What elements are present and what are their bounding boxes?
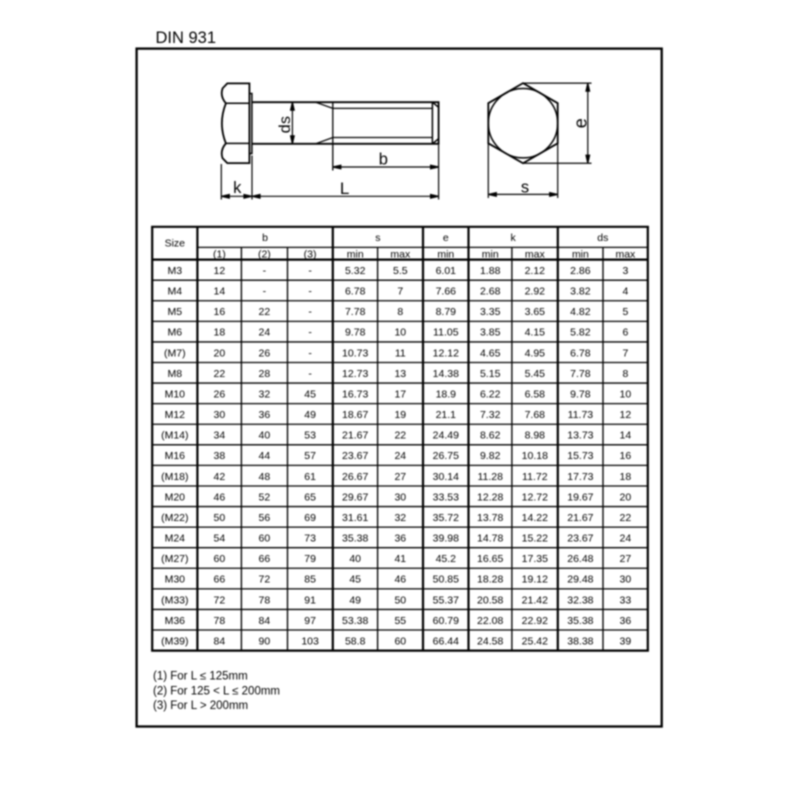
- svg-text:66: 66: [259, 553, 271, 565]
- svg-text:27: 27: [394, 471, 406, 483]
- svg-text:M10: M10: [165, 389, 186, 401]
- svg-text:4: 4: [622, 286, 628, 298]
- svg-text:78: 78: [214, 615, 226, 627]
- svg-text:6.22: 6.22: [480, 389, 501, 401]
- svg-text:24.58: 24.58: [477, 635, 503, 647]
- svg-text:32: 32: [394, 512, 406, 524]
- svg-text:8: 8: [397, 306, 403, 318]
- svg-text:k: k: [233, 179, 242, 197]
- svg-text:41: 41: [394, 553, 406, 565]
- svg-text:4.95: 4.95: [525, 347, 546, 359]
- svg-text:8.98: 8.98: [525, 430, 546, 442]
- svg-text:3.82: 3.82: [570, 286, 591, 298]
- svg-text:7: 7: [397, 286, 403, 298]
- svg-text:38.38: 38.38: [567, 635, 593, 647]
- svg-text:16.65: 16.65: [477, 553, 503, 565]
- svg-text:72: 72: [214, 594, 226, 606]
- svg-text:-: -: [263, 265, 267, 277]
- svg-text:9.78: 9.78: [570, 389, 591, 401]
- svg-text:66.44: 66.44: [433, 635, 459, 647]
- svg-text:17.35: 17.35: [522, 553, 548, 565]
- svg-text:14.38: 14.38: [433, 368, 459, 380]
- svg-text:49: 49: [349, 594, 361, 606]
- svg-text:(3) For L > 200mm: (3) For L > 200mm: [153, 700, 248, 712]
- svg-text:10: 10: [620, 389, 632, 401]
- svg-text:M3: M3: [168, 265, 183, 277]
- svg-text:90: 90: [259, 635, 271, 647]
- svg-text:6: 6: [622, 327, 628, 339]
- svg-text:30: 30: [394, 491, 406, 503]
- svg-text:5: 5: [622, 306, 628, 318]
- svg-text:10: 10: [394, 327, 406, 339]
- svg-text:58.8: 58.8: [345, 635, 366, 647]
- svg-text:15.73: 15.73: [567, 450, 593, 462]
- svg-text:66: 66: [214, 574, 226, 586]
- svg-text:18.9: 18.9: [436, 389, 457, 401]
- svg-text:e: e: [443, 232, 449, 244]
- svg-text:4.15: 4.15: [525, 327, 546, 339]
- svg-text:55: 55: [394, 615, 406, 627]
- svg-text:91: 91: [304, 594, 316, 606]
- svg-text:24: 24: [620, 533, 632, 545]
- svg-text:2.68: 2.68: [480, 286, 501, 298]
- svg-text:36: 36: [259, 409, 271, 421]
- svg-text:22.92: 22.92: [522, 615, 548, 627]
- svg-text:103: 103: [301, 635, 319, 647]
- svg-text:max: max: [525, 248, 546, 260]
- svg-text:14: 14: [214, 286, 226, 298]
- svg-text:-: -: [308, 306, 312, 318]
- svg-text:42: 42: [214, 471, 226, 483]
- svg-text:-: -: [263, 286, 267, 298]
- svg-text:49: 49: [304, 409, 316, 421]
- svg-text:24: 24: [394, 450, 406, 462]
- svg-text:31.61: 31.61: [342, 512, 368, 524]
- svg-text:7.68: 7.68: [525, 409, 546, 421]
- svg-text:23.67: 23.67: [567, 533, 593, 545]
- svg-text:8.62: 8.62: [480, 430, 501, 442]
- svg-text:21.42: 21.42: [522, 594, 548, 606]
- svg-text:14.78: 14.78: [477, 533, 503, 545]
- svg-text:53: 53: [304, 430, 316, 442]
- svg-text:97: 97: [304, 615, 316, 627]
- svg-text:7.78: 7.78: [345, 306, 366, 318]
- svg-text:s: s: [375, 232, 380, 244]
- svg-text:26.48: 26.48: [567, 553, 593, 565]
- svg-text:8.79: 8.79: [436, 306, 457, 318]
- svg-text:39: 39: [620, 635, 632, 647]
- svg-text:M4: M4: [168, 286, 183, 298]
- svg-text:3: 3: [622, 265, 628, 277]
- svg-text:10.18: 10.18: [522, 450, 548, 462]
- svg-text:12.28: 12.28: [477, 491, 503, 503]
- svg-text:19.67: 19.67: [567, 491, 593, 503]
- svg-text:(M39): (M39): [161, 635, 188, 647]
- svg-text:46: 46: [394, 574, 406, 586]
- svg-text:b: b: [262, 232, 268, 244]
- svg-text:45: 45: [304, 389, 316, 401]
- svg-text:1.88: 1.88: [480, 265, 501, 277]
- svg-text:17: 17: [394, 389, 406, 401]
- svg-text:ds: ds: [597, 232, 608, 244]
- svg-text:19: 19: [394, 409, 406, 421]
- svg-text:28: 28: [259, 368, 271, 380]
- svg-text:(M33): (M33): [161, 594, 188, 606]
- svg-text:11.28: 11.28: [477, 471, 503, 483]
- svg-text:b: b: [379, 151, 388, 169]
- svg-text:12.72: 12.72: [522, 491, 548, 503]
- svg-text:s: s: [521, 178, 529, 196]
- svg-text:9.78: 9.78: [345, 327, 366, 339]
- svg-text:79: 79: [304, 553, 316, 565]
- svg-text:M30: M30: [165, 574, 186, 586]
- svg-text:24: 24: [259, 327, 271, 339]
- svg-text:60.79: 60.79: [433, 615, 459, 627]
- svg-text:45: 45: [349, 574, 361, 586]
- svg-text:40: 40: [259, 430, 271, 442]
- svg-text:22: 22: [214, 368, 226, 380]
- svg-text:29.67: 29.67: [342, 491, 368, 503]
- svg-text:14.22: 14.22: [522, 512, 548, 524]
- svg-text:26.67: 26.67: [342, 471, 368, 483]
- svg-text:17.73: 17.73: [567, 471, 593, 483]
- svg-text:20.58: 20.58: [477, 594, 503, 606]
- svg-text:7.66: 7.66: [436, 286, 457, 298]
- svg-text:22.08: 22.08: [477, 615, 503, 627]
- svg-text:21.67: 21.67: [342, 430, 368, 442]
- svg-text:48: 48: [259, 471, 271, 483]
- svg-text:M24: M24: [165, 533, 186, 545]
- svg-text:53.38: 53.38: [342, 615, 368, 627]
- svg-text:60: 60: [259, 533, 271, 545]
- svg-text:25.42: 25.42: [522, 635, 548, 647]
- svg-text:6.78: 6.78: [345, 286, 366, 298]
- svg-text:5.15: 5.15: [480, 368, 501, 380]
- svg-text:26: 26: [259, 347, 271, 359]
- svg-text:min: min: [437, 248, 454, 260]
- svg-text:min: min: [347, 248, 364, 260]
- svg-text:4.65: 4.65: [480, 347, 501, 359]
- svg-text:-: -: [308, 265, 312, 277]
- svg-text:18: 18: [620, 471, 632, 483]
- svg-text:M20: M20: [165, 491, 186, 503]
- svg-text:61: 61: [304, 471, 316, 483]
- svg-text:18: 18: [214, 327, 226, 339]
- svg-text:36: 36: [620, 615, 632, 627]
- svg-text:2.12: 2.12: [525, 265, 546, 277]
- svg-text:-: -: [308, 368, 312, 380]
- svg-text:16: 16: [620, 450, 632, 462]
- svg-text:69: 69: [304, 512, 316, 524]
- svg-text:5.32: 5.32: [345, 265, 366, 277]
- svg-text:min: min: [482, 248, 499, 260]
- svg-text:7.78: 7.78: [570, 368, 591, 380]
- svg-text:12: 12: [214, 265, 226, 277]
- svg-text:56: 56: [259, 512, 271, 524]
- svg-text:33.53: 33.53: [433, 491, 459, 503]
- svg-text:M6: M6: [168, 327, 183, 339]
- svg-text:20: 20: [214, 347, 226, 359]
- svg-text:M12: M12: [165, 409, 186, 421]
- svg-text:(1): (1): [213, 248, 226, 260]
- svg-text:14: 14: [620, 430, 632, 442]
- svg-text:13: 13: [394, 368, 406, 380]
- svg-text:73: 73: [304, 533, 316, 545]
- svg-text:8: 8: [622, 368, 628, 380]
- svg-text:M16: M16: [165, 450, 186, 462]
- svg-text:32: 32: [259, 389, 271, 401]
- svg-text:9.82: 9.82: [480, 450, 501, 462]
- svg-text:57: 57: [304, 450, 316, 462]
- svg-text:20: 20: [620, 491, 632, 503]
- svg-text:85: 85: [304, 574, 316, 586]
- svg-text:10.73: 10.73: [342, 347, 368, 359]
- svg-text:(M22): (M22): [161, 512, 188, 524]
- svg-text:29.48: 29.48: [567, 574, 593, 586]
- svg-text:max: max: [390, 248, 411, 260]
- svg-text:3.85: 3.85: [480, 327, 501, 339]
- svg-text:32.38: 32.38: [567, 594, 593, 606]
- svg-text:7.32: 7.32: [480, 409, 501, 421]
- svg-text:2.86: 2.86: [570, 265, 591, 277]
- svg-text:39.98: 39.98: [433, 533, 459, 545]
- svg-text:84: 84: [214, 635, 226, 647]
- svg-text:M36: M36: [165, 615, 186, 627]
- svg-text:72: 72: [259, 574, 271, 586]
- svg-text:50.85: 50.85: [433, 574, 459, 586]
- svg-text:5.5: 5.5: [393, 265, 408, 277]
- svg-text:22: 22: [620, 512, 632, 524]
- svg-text:22: 22: [394, 430, 406, 442]
- svg-text:34: 34: [214, 430, 226, 442]
- svg-text:11.72: 11.72: [522, 471, 548, 483]
- svg-text:38: 38: [214, 450, 226, 462]
- svg-text:40: 40: [349, 553, 361, 565]
- svg-text:35.38: 35.38: [342, 533, 368, 545]
- svg-text:-: -: [308, 286, 312, 298]
- svg-text:3.35: 3.35: [480, 306, 501, 318]
- svg-text:ds: ds: [277, 116, 294, 134]
- svg-text:60: 60: [394, 635, 406, 647]
- svg-text:24.49: 24.49: [433, 430, 459, 442]
- svg-text:(3): (3): [304, 248, 317, 260]
- svg-text:5.45: 5.45: [525, 368, 546, 380]
- svg-text:2.92: 2.92: [525, 286, 546, 298]
- svg-text:78: 78: [259, 594, 271, 606]
- svg-text:50: 50: [214, 512, 226, 524]
- svg-text:max: max: [615, 248, 636, 260]
- svg-text:18.67: 18.67: [342, 409, 368, 421]
- svg-text:12.12: 12.12: [433, 347, 459, 359]
- svg-text:6.58: 6.58: [525, 389, 546, 401]
- svg-text:30: 30: [214, 409, 226, 421]
- svg-text:13.78: 13.78: [477, 512, 503, 524]
- svg-text:52: 52: [259, 491, 271, 503]
- svg-text:15.22: 15.22: [522, 533, 548, 545]
- svg-text:12: 12: [620, 409, 632, 421]
- svg-text:55.37: 55.37: [433, 594, 459, 606]
- svg-text:-: -: [308, 327, 312, 339]
- svg-text:21.1: 21.1: [436, 409, 457, 421]
- svg-text:27: 27: [620, 553, 632, 565]
- svg-text:M5: M5: [168, 306, 183, 318]
- svg-text:min: min: [572, 248, 589, 260]
- svg-text:Size: Size: [165, 238, 186, 250]
- svg-text:3.65: 3.65: [525, 306, 546, 318]
- svg-text:M8: M8: [168, 368, 183, 380]
- svg-text:16.73: 16.73: [342, 389, 368, 401]
- svg-text:(1) For L ≤ 125mm: (1) For L ≤ 125mm: [153, 671, 248, 683]
- svg-text:46: 46: [214, 491, 226, 503]
- svg-text:DIN 931: DIN 931: [156, 29, 217, 47]
- svg-text:13.73: 13.73: [567, 430, 593, 442]
- svg-text:33: 33: [620, 594, 632, 606]
- svg-text:26.75: 26.75: [433, 450, 459, 462]
- svg-text:L: L: [340, 179, 349, 198]
- svg-text:7: 7: [622, 347, 628, 359]
- svg-text:(M7): (M7): [164, 347, 186, 359]
- svg-text:30: 30: [620, 574, 632, 586]
- svg-text:6.78: 6.78: [570, 347, 591, 359]
- svg-text:36: 36: [394, 533, 406, 545]
- svg-text:e: e: [570, 118, 590, 128]
- svg-text:60: 60: [214, 553, 226, 565]
- svg-text:12.73: 12.73: [342, 368, 368, 380]
- svg-text:-: -: [308, 347, 312, 359]
- svg-text:(2): (2): [258, 248, 271, 260]
- svg-text:(M18): (M18): [161, 471, 188, 483]
- svg-text:6.01: 6.01: [436, 265, 457, 277]
- svg-text:(M27): (M27): [161, 553, 188, 565]
- svg-text:18.28: 18.28: [477, 574, 503, 586]
- svg-text:54: 54: [214, 533, 226, 545]
- svg-text:23.67: 23.67: [342, 450, 368, 462]
- svg-text:50: 50: [394, 594, 406, 606]
- svg-text:11.05: 11.05: [433, 327, 459, 339]
- svg-text:35.38: 35.38: [567, 615, 593, 627]
- svg-text:45.2: 45.2: [436, 553, 457, 565]
- svg-text:21.67: 21.67: [567, 512, 593, 524]
- svg-text:11.73: 11.73: [568, 409, 594, 421]
- svg-text:5.82: 5.82: [570, 327, 591, 339]
- svg-text:22: 22: [259, 306, 271, 318]
- svg-text:26: 26: [214, 389, 226, 401]
- svg-text:84: 84: [259, 615, 271, 627]
- svg-text:k: k: [510, 232, 516, 244]
- svg-text:35.72: 35.72: [433, 512, 459, 524]
- svg-text:(2) For 125 < L ≤ 200mm: (2) For 125 < L ≤ 200mm: [153, 686, 280, 698]
- svg-text:30.14: 30.14: [433, 471, 459, 483]
- svg-text:19.12: 19.12: [522, 574, 548, 586]
- svg-text:(M14): (M14): [161, 430, 188, 442]
- svg-text:16: 16: [214, 306, 226, 318]
- svg-text:11: 11: [395, 347, 406, 359]
- svg-text:65: 65: [304, 491, 316, 503]
- svg-text:44: 44: [259, 450, 271, 462]
- svg-text:4.82: 4.82: [570, 306, 591, 318]
